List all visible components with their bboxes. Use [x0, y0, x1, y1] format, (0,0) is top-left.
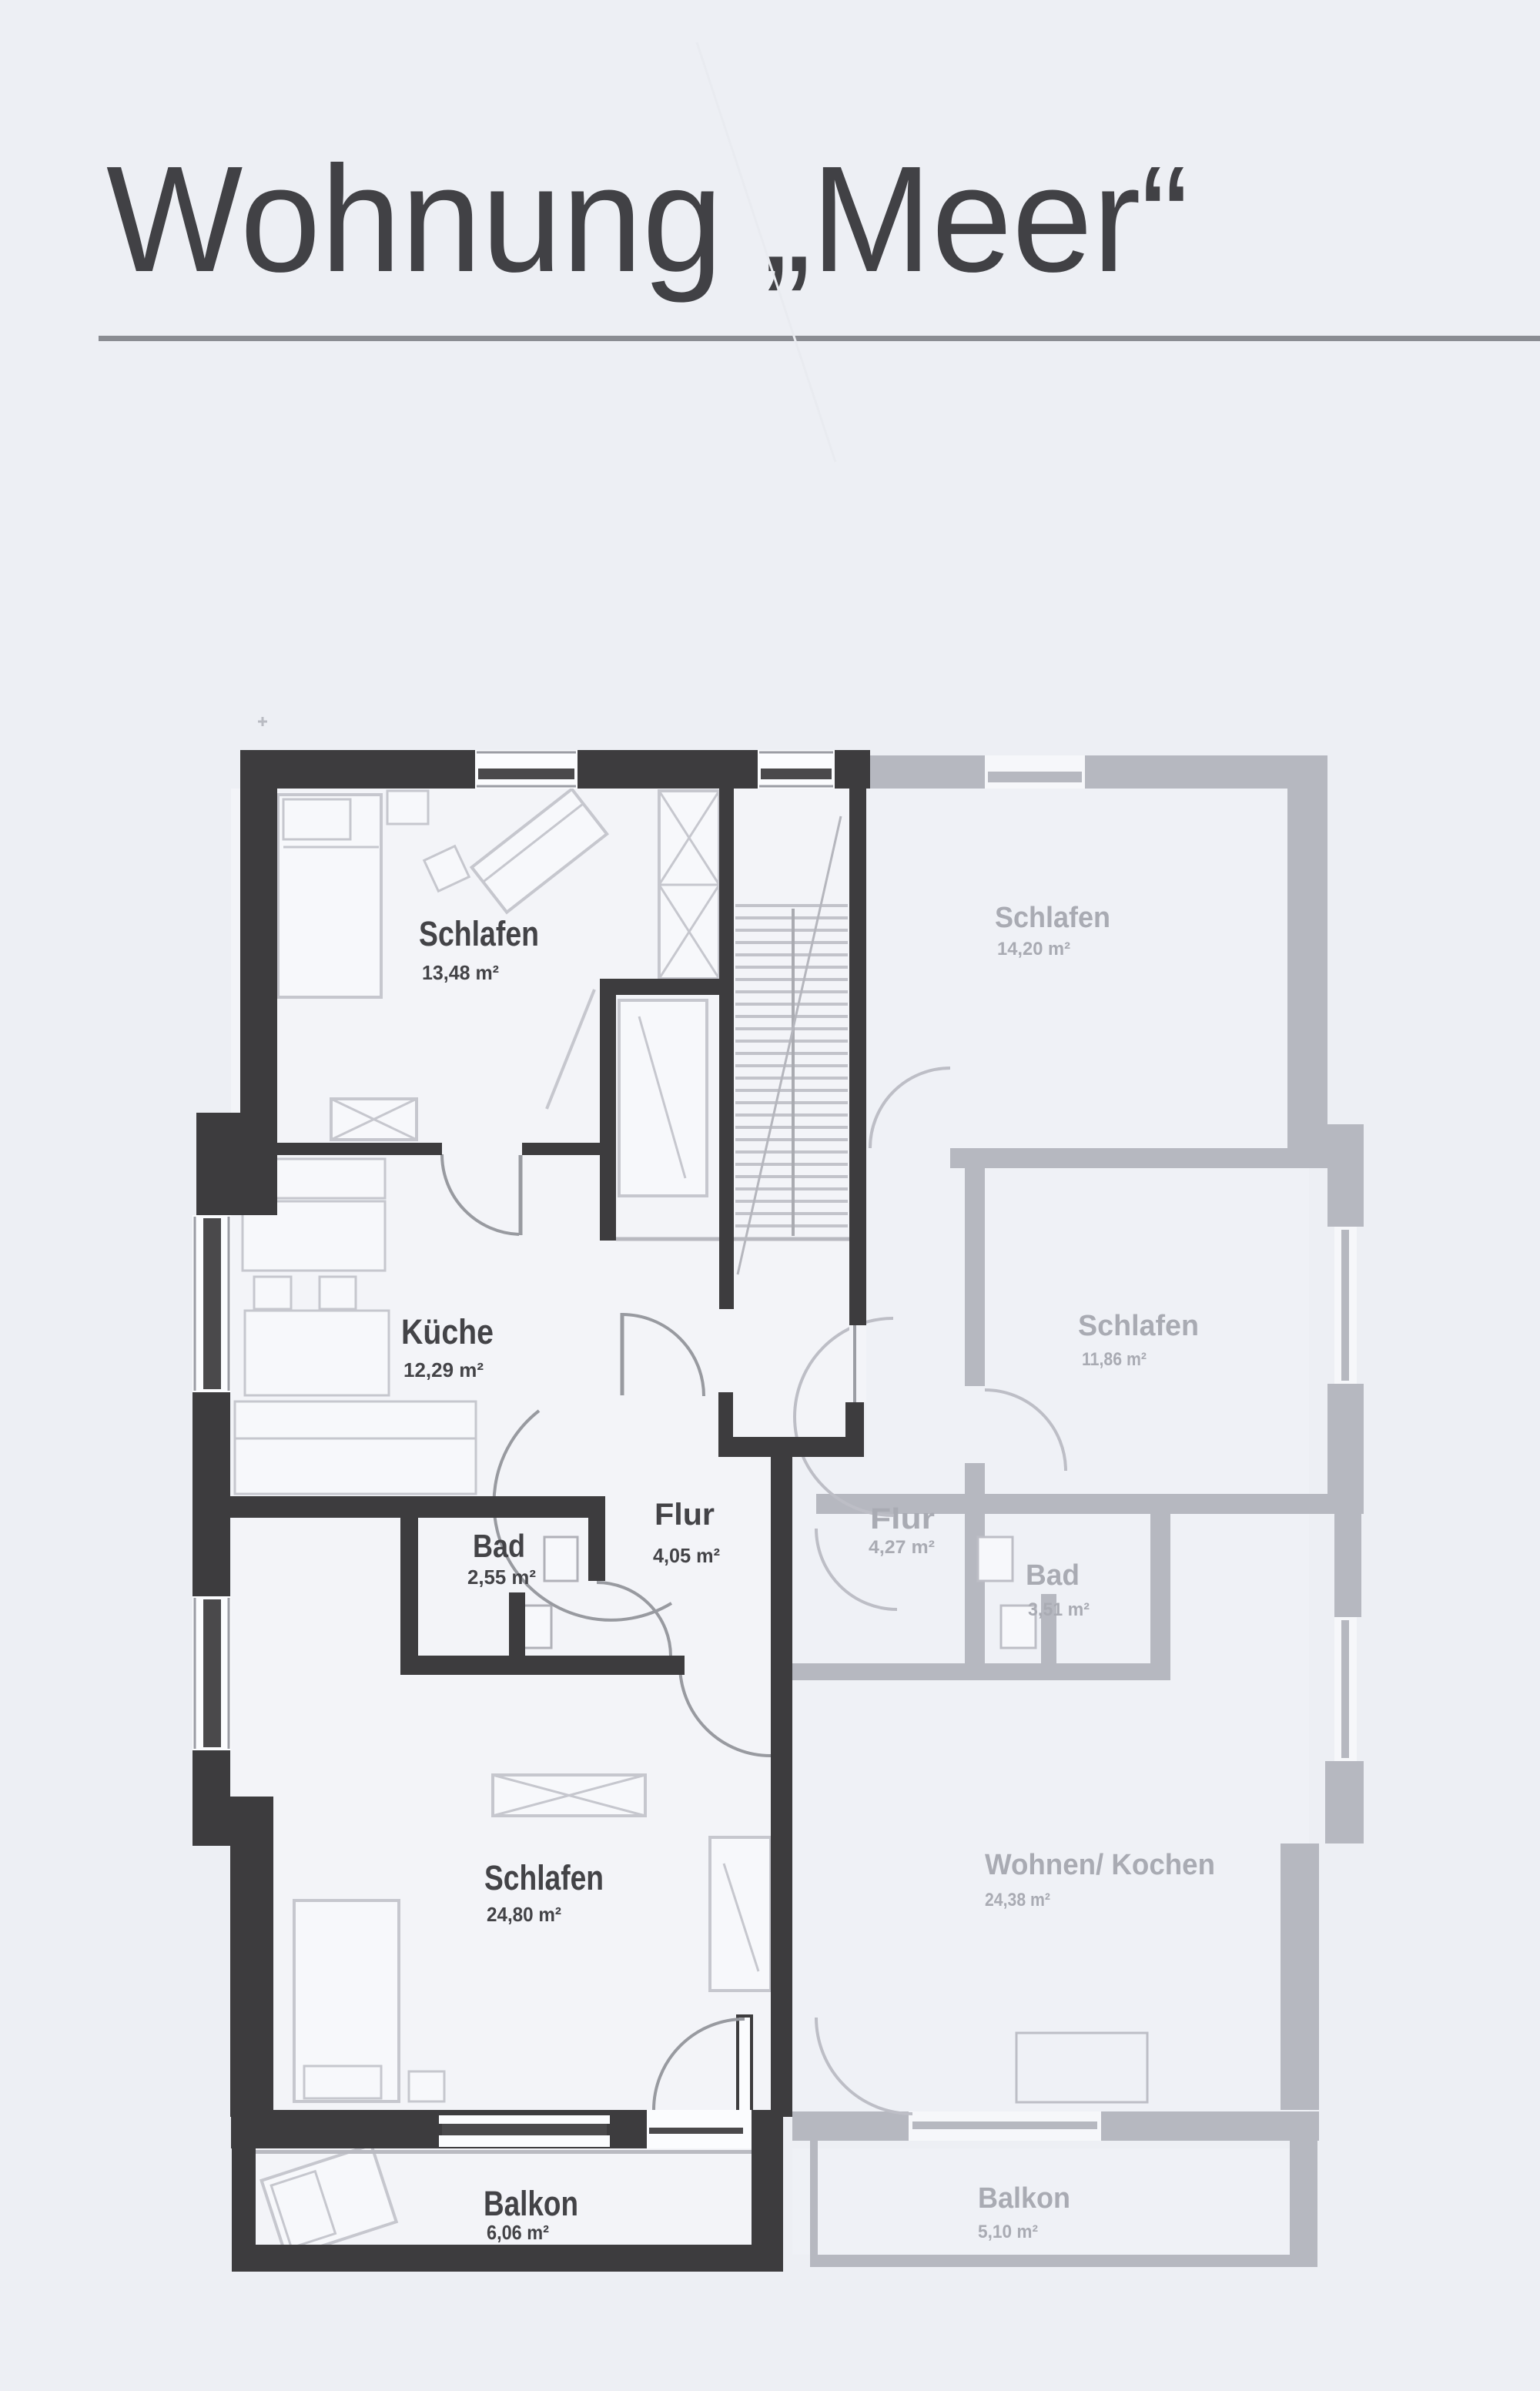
svg-text:24,38 m²: 24,38 m²: [985, 1890, 1050, 1910]
svg-text:Schlafen: Schlafen: [995, 902, 1110, 934]
svg-text:4,05 m²: 4,05 m²: [653, 1544, 720, 1567]
svg-text:14,20 m²: 14,20 m²: [997, 939, 1070, 959]
svg-text:Wohnung „Meer“: Wohnung „Meer“: [106, 135, 1189, 303]
svg-text:Flur: Flur: [654, 1498, 715, 1532]
svg-text:12,29 m²: 12,29 m²: [403, 1358, 484, 1381]
svg-text:Balkon: Balkon: [978, 2182, 1070, 2215]
svg-text:6,06 m²: 6,06 m²: [487, 2221, 549, 2244]
svg-text:Wohnen/ Kochen: Wohnen/ Kochen: [985, 1849, 1215, 1881]
svg-text:Küche: Küche: [401, 1312, 494, 1351]
svg-text:Schlafen: Schlafen: [1078, 1310, 1199, 1342]
svg-text:13,48 m²: 13,48 m²: [422, 961, 499, 984]
svg-text:Balkon: Balkon: [484, 2184, 578, 2223]
svg-text:4,27 m²: 4,27 m²: [869, 1537, 935, 1558]
svg-text:5,10 m²: 5,10 m²: [978, 2222, 1038, 2242]
svg-text:11,86 m²: 11,86 m²: [1082, 1349, 1147, 1370]
svg-text:Bad: Bad: [1026, 1559, 1080, 1592]
svg-text:Flur: Flur: [870, 1503, 935, 1535]
svg-text:Schlafen: Schlafen: [419, 914, 539, 953]
svg-text:2,55 m²: 2,55 m²: [467, 1566, 536, 1589]
svg-text:3,51 m²: 3,51 m²: [1028, 1599, 1090, 1620]
svg-text:24,80 m²: 24,80 m²: [487, 1903, 561, 1926]
svg-text:Schlafen: Schlafen: [484, 1858, 604, 1897]
svg-text:Bad: Bad: [473, 1528, 525, 1564]
